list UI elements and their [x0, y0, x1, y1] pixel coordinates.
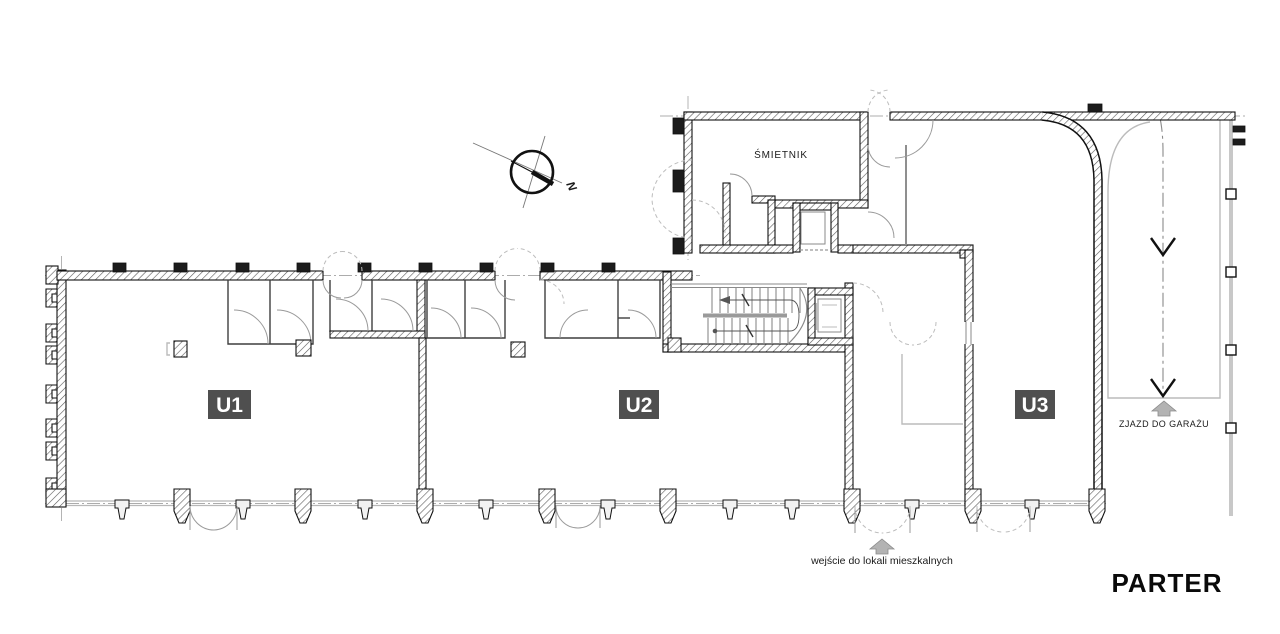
core-corridor [853, 90, 974, 506]
axis-lines [45, 96, 1248, 524]
residential-door [855, 506, 910, 533]
floor-plan-page: U1 U2 U3 ŚMIETNIK ZJAZD DO GARAŻU wejści… [0, 0, 1280, 634]
compass-rose: N [473, 136, 580, 208]
north-label: N [563, 179, 580, 193]
smietnik-label: ŚMIETNIK [754, 148, 808, 161]
unit-label-u2: U2 [619, 390, 659, 419]
u1-label: U1 [216, 394, 243, 417]
garage-ramp [1108, 118, 1220, 398]
service-shaft [793, 203, 838, 252]
exterior-walls [46, 104, 1235, 507]
fence-post [1226, 189, 1236, 199]
u2-label: U2 [626, 394, 653, 417]
shop-door-u2 [556, 506, 600, 528]
staircase [671, 284, 807, 344]
fence-post [1226, 267, 1236, 277]
floor-plan-drawing: U1 U2 U3 ŚMIETNIK ZJAZD DO GARAŻU wejści… [0, 0, 1280, 634]
u3-label: U3 [1022, 394, 1049, 417]
unit-label-u1: U1 [208, 390, 251, 419]
fixtures [167, 341, 187, 357]
entrance-annotation: wejście do lokali mieszkalnych [810, 539, 953, 567]
entrance-arrow-icon [870, 539, 894, 554]
garage-annotation: ZJAZD DO GARAŻU [1119, 401, 1209, 429]
stair-hall [663, 272, 883, 506]
garage-arrow-icon [1152, 401, 1176, 416]
boundary-fence [1226, 113, 1245, 516]
strip-door-1 [323, 252, 362, 299]
u1-u2-divider-wall [419, 338, 426, 506]
shop-door-u1 [190, 506, 237, 530]
fence-post [1226, 423, 1236, 433]
garage-ramp-label: ZJAZD DO GARAŻU [1119, 419, 1209, 429]
u3-door [977, 506, 1030, 532]
fence-post [1226, 345, 1236, 355]
unit-label-u3: U3 [1015, 390, 1055, 419]
residential-entrance-label: wejście do lokali mieszkalnych [810, 555, 953, 567]
page-title: PARTER [1112, 568, 1223, 598]
